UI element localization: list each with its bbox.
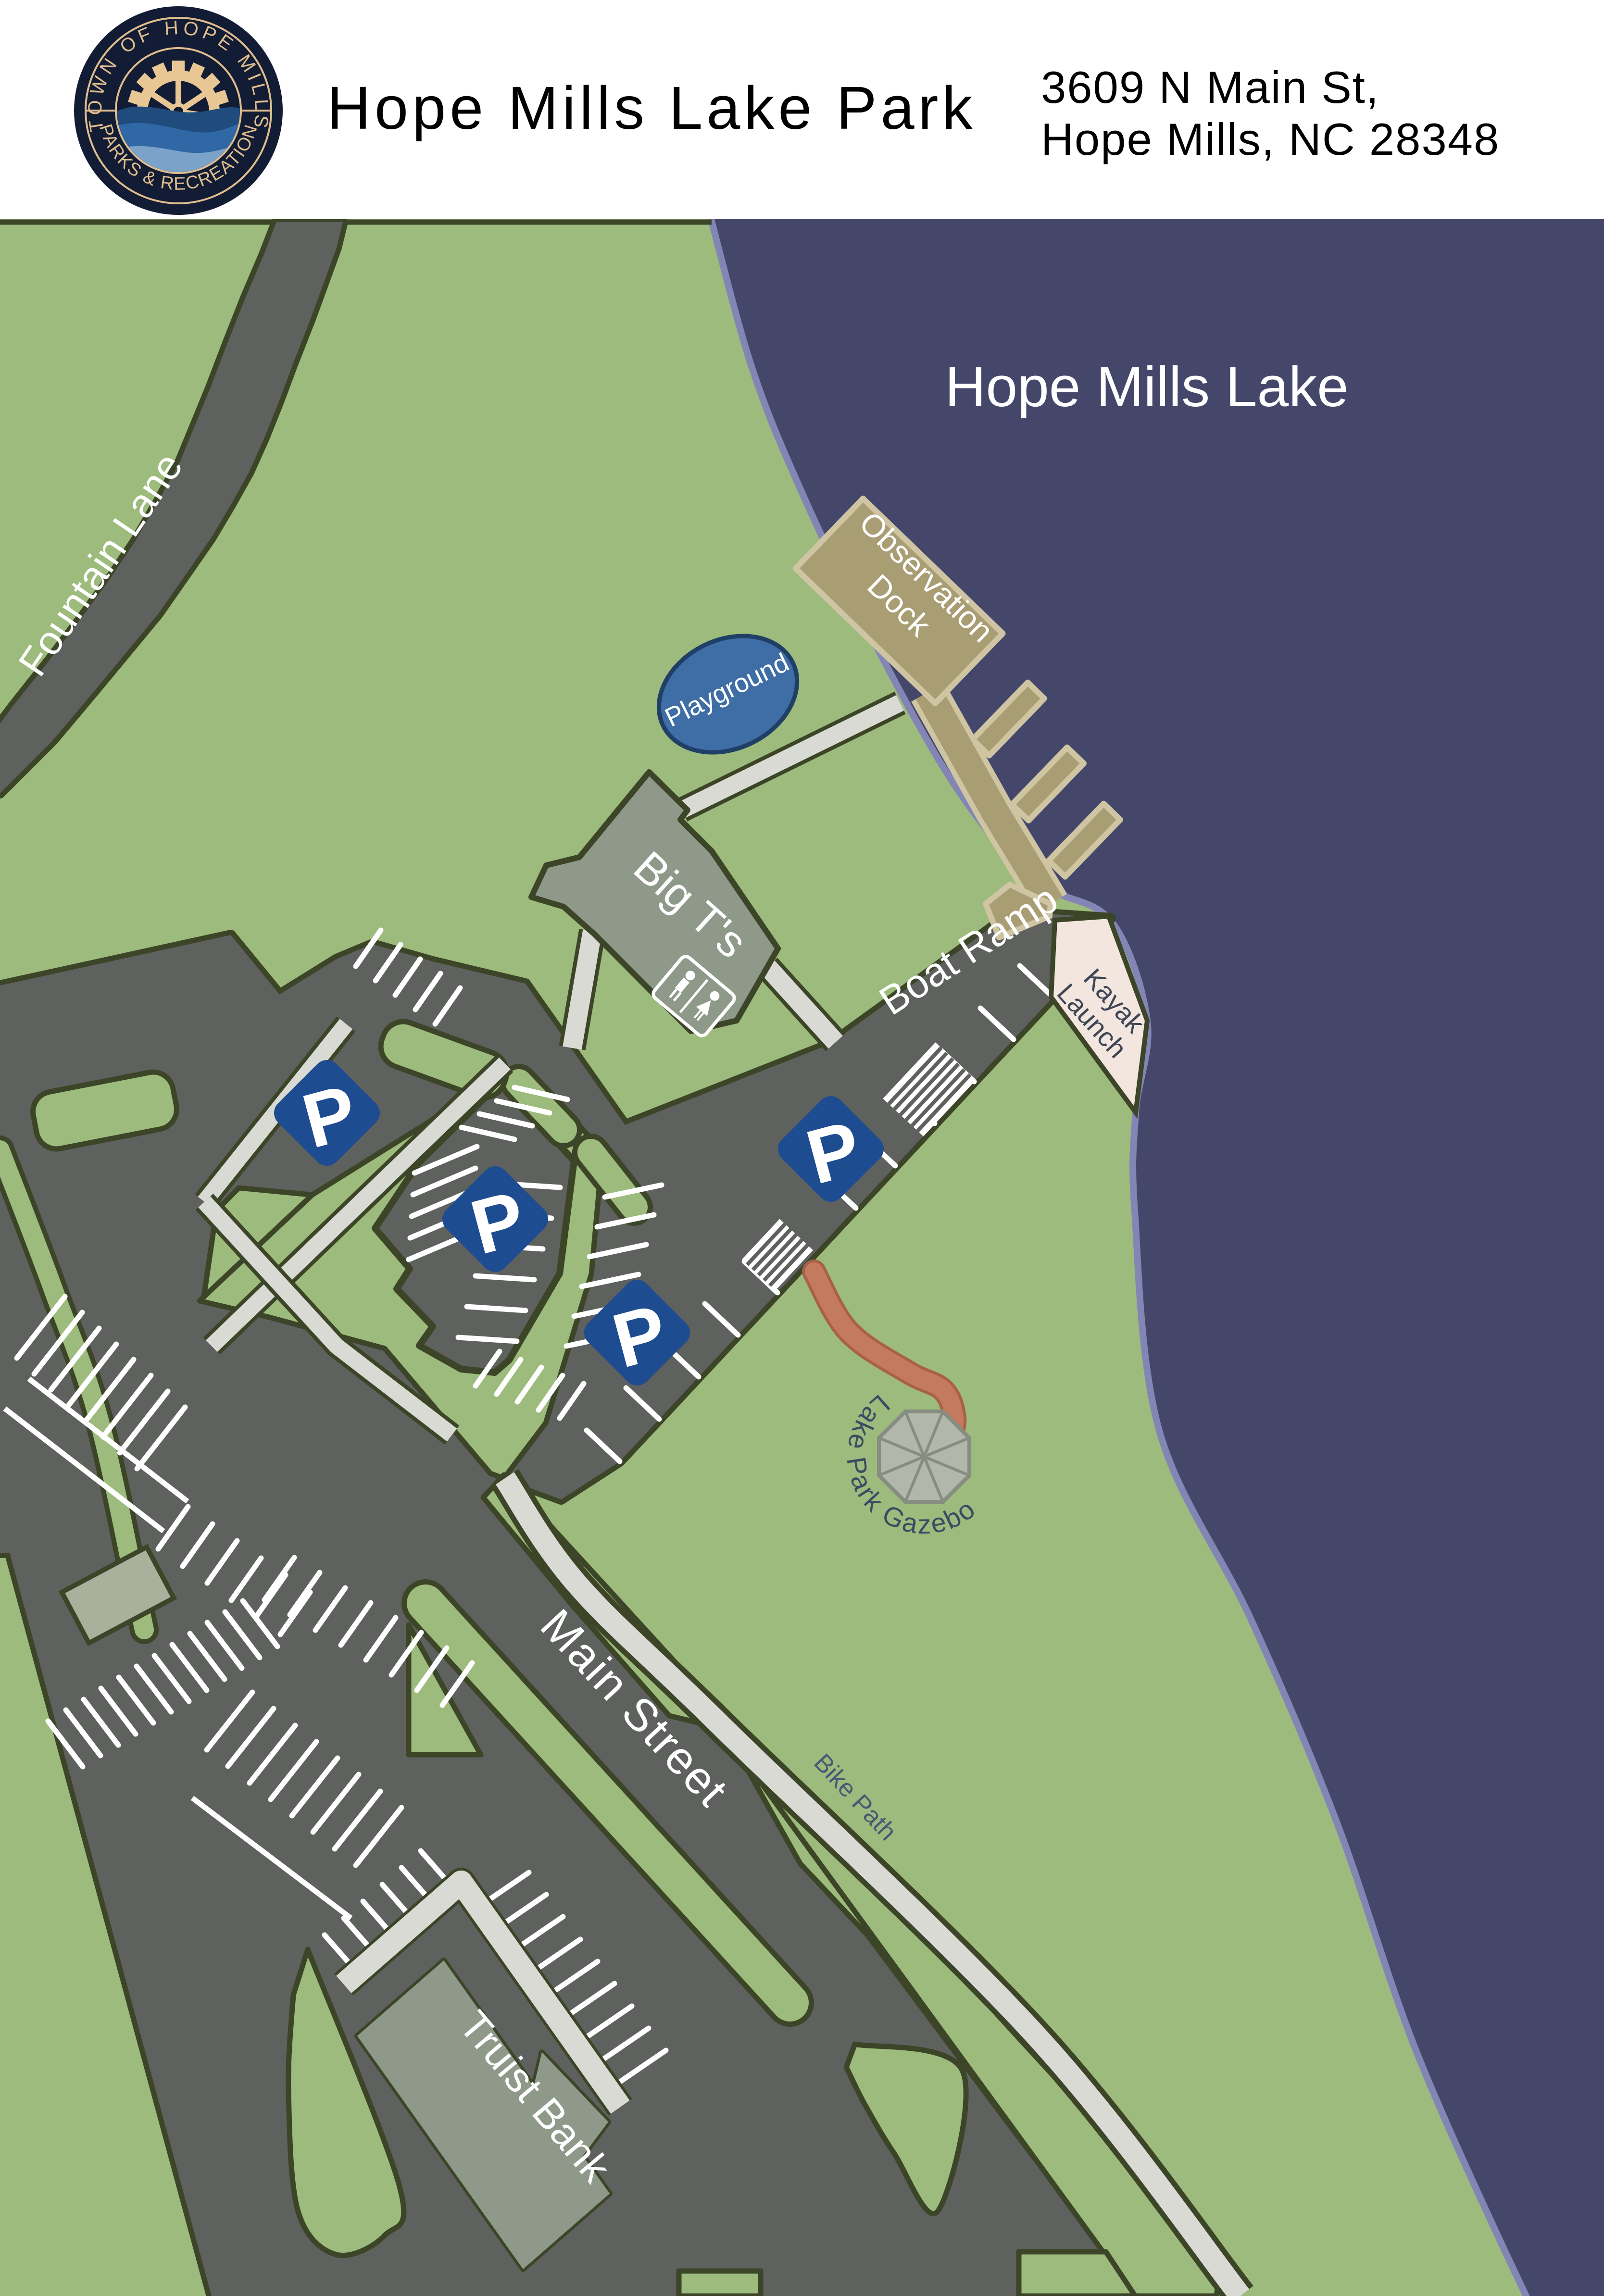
svg-text:Hope Mills, NC 28348: Hope Mills, NC 28348 — [1041, 114, 1500, 164]
svg-text:Hope Mills Lake Park: Hope Mills Lake Park — [327, 74, 976, 142]
svg-text:Hope Mills Lake: Hope Mills Lake — [945, 355, 1348, 419]
svg-text:3609 N Main St,: 3609 N Main St, — [1041, 62, 1379, 112]
